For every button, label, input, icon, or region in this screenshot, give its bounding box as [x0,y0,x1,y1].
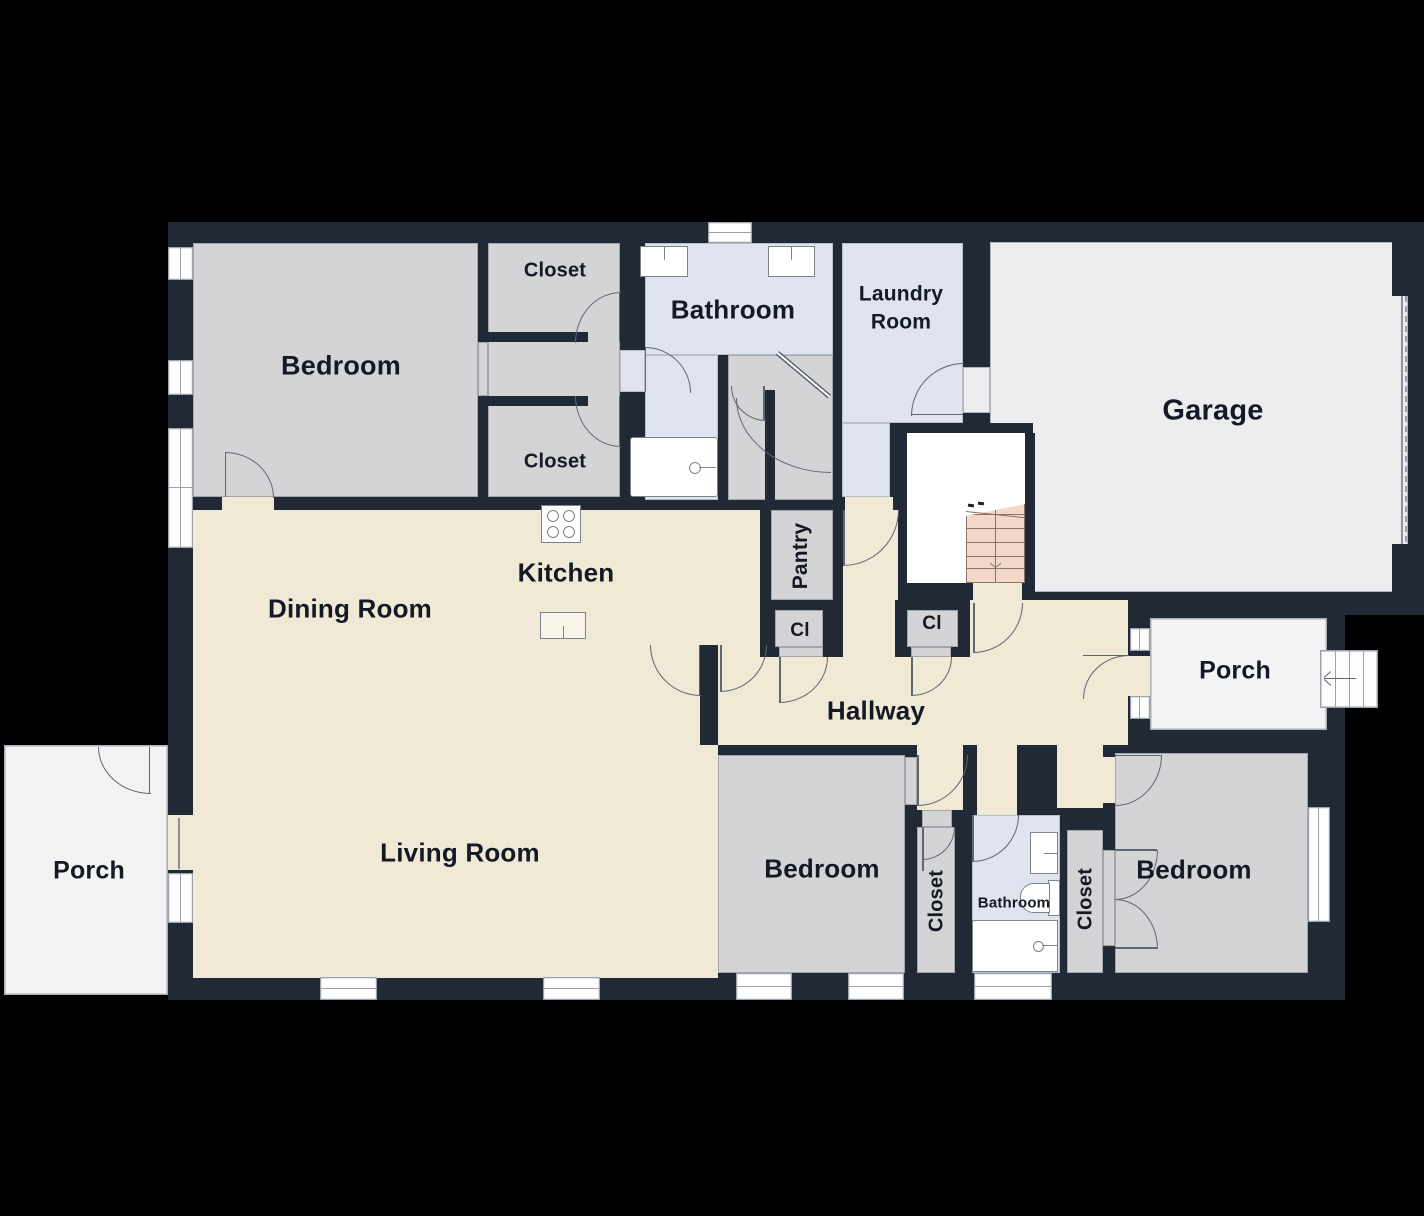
sliding-door-opening [168,815,193,870]
garage-door-dashed-line [1405,296,1407,544]
room-label-hallway: Hallway [827,696,925,727]
garage-door-stub-bottom [1392,544,1424,615]
room-label-porch-left: Porch [53,857,125,886]
kitchen-sink-icon [540,612,586,639]
bathtub-icon [630,437,718,497]
garage-door-stub-top [1392,242,1424,296]
sliding-door-leaf [178,818,180,869]
room-label-closet-mid: Closet [524,451,586,474]
room-dining-living [193,510,718,978]
room-label-laundry: Laundry Room [846,281,956,338]
room-label-porch-right: Porch [1199,657,1271,686]
room-label-closet-bl: Closet [926,870,949,932]
room-label-cl-left: Cl [790,620,809,642]
staircase-icon [966,500,1025,583]
room-label-cl-right: Cl [922,613,941,635]
left-arrow-icon [1324,678,1356,679]
room-label-living: Living Room [380,838,540,869]
stove-icon [541,505,581,543]
room-label-bedroom-br: Bedroom [1136,855,1252,886]
vestibule-left-wall [718,355,728,500]
bathtub-icon [972,920,1058,972]
bathroom-sink-icon [768,246,815,277]
porch-steps [1320,650,1378,708]
stair-room-top-wall [890,423,1033,433]
room-label-garage: Garage [1162,395,1263,428]
room-label-closet-br: Closet [1075,868,1098,930]
room-label-bathroom-small: Bathroom [978,895,1050,912]
room-laundry-b [842,423,890,497]
closet-mid-top-wall [478,396,588,406]
room-label-bedroom-tl: Bedroom [281,351,401,382]
room-label-pantry: Pantry [789,523,813,590]
bathroom-sink-icon [640,246,688,277]
closet-top-bottom-wall [478,332,588,342]
closet-corridor-patch [478,342,488,396]
stair-room-right-wall [1025,433,1035,603]
bedroom-bl-door-patch [905,757,917,805]
bathroom-sink-icon [1030,832,1058,874]
room-label-dining: Dining Room [268,594,432,625]
garage-door-icon [1401,296,1403,544]
room-label-bathroom-top: Bathroom [671,295,795,326]
room-label-bedroom-bl: Bedroom [764,854,880,885]
living-hall-stub [700,645,718,745]
room-label-kitchen: Kitchen [518,558,615,589]
hall-corridor-bedroom [1057,745,1103,808]
floorplan-canvas: Bedroom Closet Closet Bathroom Laundry R… [0,0,1424,1216]
room-label-closet-top: Closet [524,260,586,283]
